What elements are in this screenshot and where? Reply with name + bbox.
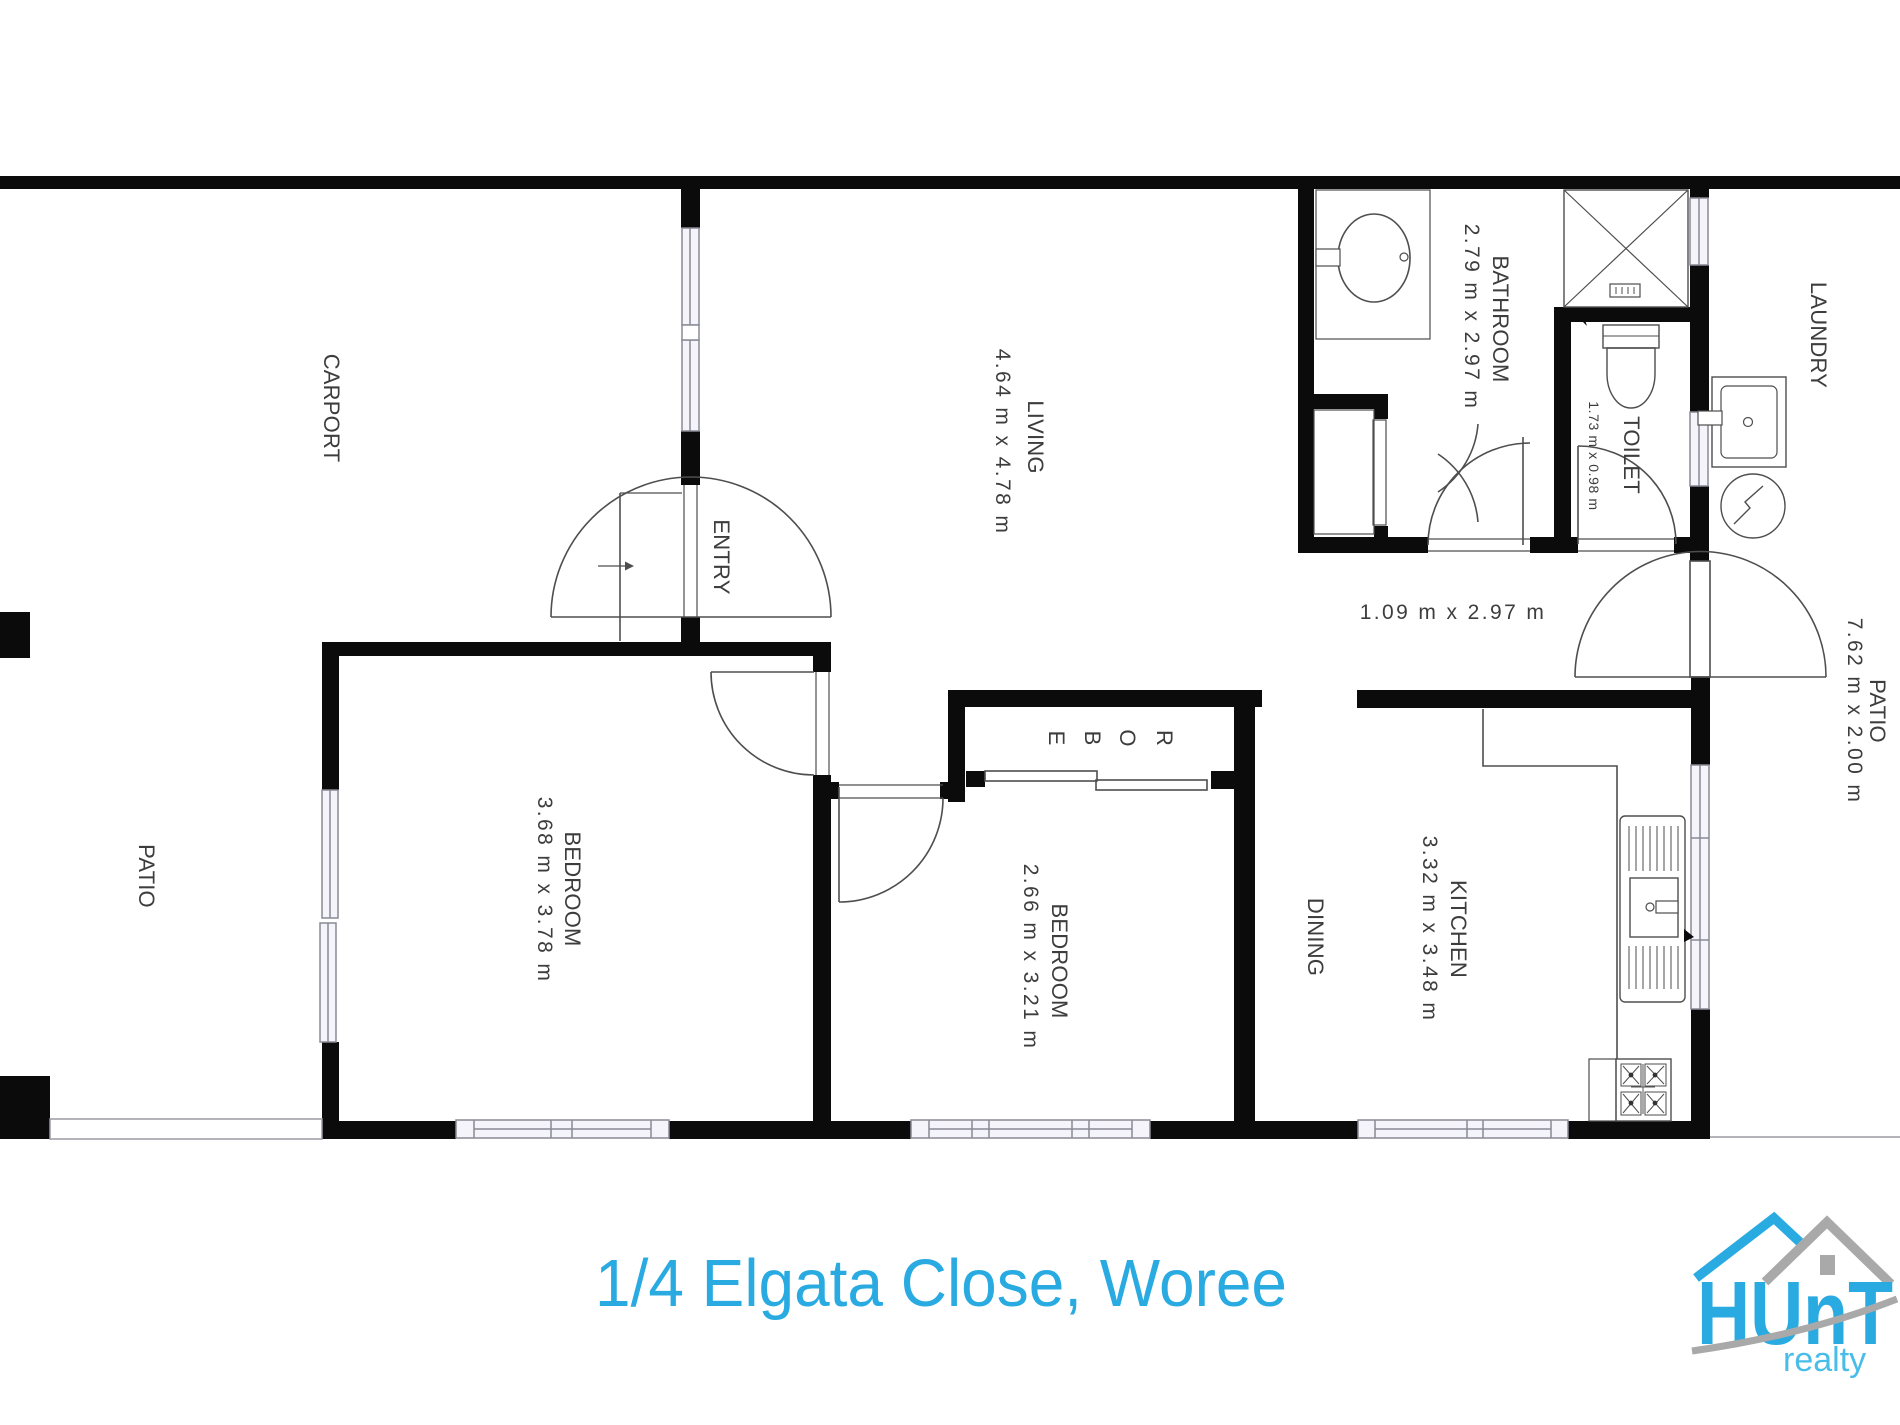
- svg-text:2.66 m x 3.21 m: 2.66 m x 3.21 m: [1019, 864, 1042, 1051]
- svg-text:CARPORT: CARPORT: [319, 354, 344, 463]
- svg-text:ENTRY: ENTRY: [709, 519, 734, 594]
- svg-text:1.73 m x 0.98 m: 1.73 m x 0.98 m: [1586, 401, 1602, 510]
- svg-text:KITCHEN: KITCHEN: [1446, 880, 1471, 978]
- svg-text:DINING: DINING: [1303, 898, 1328, 976]
- svg-text:BEDROOM: BEDROOM: [1047, 903, 1072, 1018]
- svg-text:2.79 m x 2.97 m: 2.79 m x 2.97 m: [1460, 224, 1483, 411]
- svg-text:LIVING: LIVING: [1023, 400, 1048, 473]
- svg-text:BEDROOM: BEDROOM: [560, 831, 585, 946]
- svg-text:realty: realty: [1783, 1341, 1866, 1379]
- svg-text:3.68 m x 3.78 m: 3.68 m x 3.78 m: [533, 797, 556, 984]
- svg-text:4.64 m x 4.78 m: 4.64 m x 4.78 m: [991, 349, 1014, 536]
- svg-text:E: E: [1044, 731, 1069, 746]
- svg-text:PATIO: PATIO: [1865, 679, 1890, 743]
- svg-text:3.32 m x 3.48 m: 3.32 m x 3.48 m: [1418, 836, 1441, 1023]
- svg-text:PATIO: PATIO: [134, 844, 159, 908]
- svg-text:1/4 Elgata Close, Woree: 1/4 Elgata Close, Woree: [595, 1246, 1287, 1321]
- svg-text:B: B: [1080, 731, 1105, 746]
- svg-text:1.09 m x 2.97 m: 1.09 m x 2.97 m: [1360, 601, 1547, 624]
- svg-text:LAUNDRY: LAUNDRY: [1806, 282, 1831, 388]
- svg-text:TOILET: TOILET: [1619, 416, 1644, 494]
- svg-text:BATHROOM: BATHROOM: [1488, 255, 1513, 382]
- svg-text:O: O: [1115, 729, 1140, 746]
- svg-text:R: R: [1152, 730, 1177, 746]
- svg-text:7.62 m x 2.00 m: 7.62 m x 2.00 m: [1843, 618, 1866, 805]
